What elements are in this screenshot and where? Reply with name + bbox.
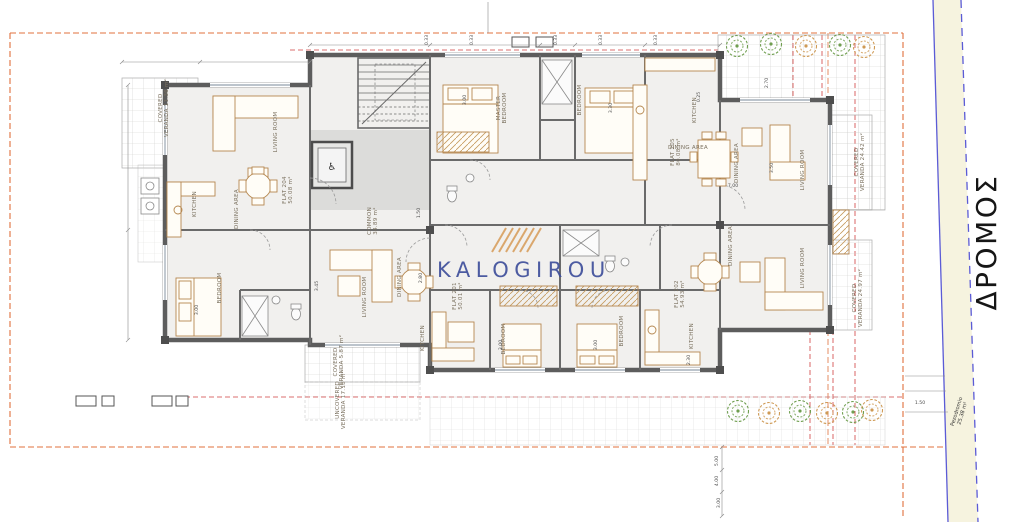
dimension-label: 2.30 (686, 355, 692, 365)
room-label: BEDROOM (619, 316, 625, 347)
dimension-label: 1.50 (915, 400, 925, 406)
veranda-bottom-uncovered (305, 382, 420, 420)
room-label: BEDROOM (217, 273, 223, 304)
dimension-label: 2.80 (418, 273, 424, 283)
bed (585, 88, 640, 153)
room-label: DINING AREA (734, 143, 740, 183)
room-label: DINING AREA (728, 226, 734, 266)
dimension-label: 3.00 (194, 305, 200, 315)
dimension-label: 2.70 (764, 78, 770, 88)
room-label: KITCHEN (420, 325, 426, 351)
garden-bottom-strip (430, 397, 885, 445)
dimension-label: 0.33 (553, 35, 559, 45)
room-label: DINING AREA (234, 189, 240, 229)
wheelchair-icon: ♿ (328, 162, 337, 173)
road-name-label: ΔΡΟΜΟΣ (970, 174, 1003, 311)
room-label: FLAT 20580.08 m² (670, 138, 682, 166)
veranda-bottom-covered (305, 345, 420, 382)
floor-plan-drawing: ♿ (0, 0, 1024, 522)
floor-plan-canvas: ♿ (0, 0, 1024, 522)
dimension-label: 0.33 (653, 35, 659, 45)
dimension-label: 0.33 (598, 35, 604, 45)
dimension-label: 3.00 (498, 340, 504, 350)
room-label: COMMON34.89 m² (367, 207, 379, 235)
bed (503, 324, 541, 367)
room-label: LIVING ROOM (273, 112, 279, 153)
dimension-label: 0.25 (696, 92, 702, 102)
dimension-label: 3.30 (608, 103, 614, 113)
dimension-label: 3.00 (462, 95, 468, 105)
dimension-label: 0.33 (424, 35, 430, 45)
room-label: KITCHEN (689, 323, 695, 349)
room-label: DINING AREA (397, 257, 403, 297)
dimension-label: 3.50 (769, 163, 775, 173)
dimension-label: 3.00 (716, 498, 722, 508)
dimension-label: 4.00 (714, 476, 720, 486)
elevator: ♿ (312, 142, 352, 188)
dimension-label: 3.45 (314, 281, 320, 291)
dimension-label: 7.00 (728, 183, 738, 189)
room-label: MASTERBEDROOM (496, 93, 508, 124)
watermark: KALOGIROU (437, 258, 611, 282)
room-label: LIVING ROOM (800, 150, 806, 191)
room-label: FLAT 20254.93 m² (674, 280, 686, 308)
room-label: FLAT 20150.01 m² (452, 282, 464, 310)
room-label: KITCHEN (192, 191, 198, 217)
dimension-label: 0.33 (469, 35, 475, 45)
room-label: LIVING ROOM (800, 248, 806, 289)
dimension-label: 3.00 (593, 340, 599, 350)
dimension-label: 5.00 (714, 456, 720, 466)
room-label: FLAT 20450.08 m² (282, 176, 294, 204)
room-label: LIVING ROOM (362, 277, 368, 318)
room-label: BEDROOM (577, 85, 583, 116)
dimension-label: 1.50 (416, 208, 422, 218)
